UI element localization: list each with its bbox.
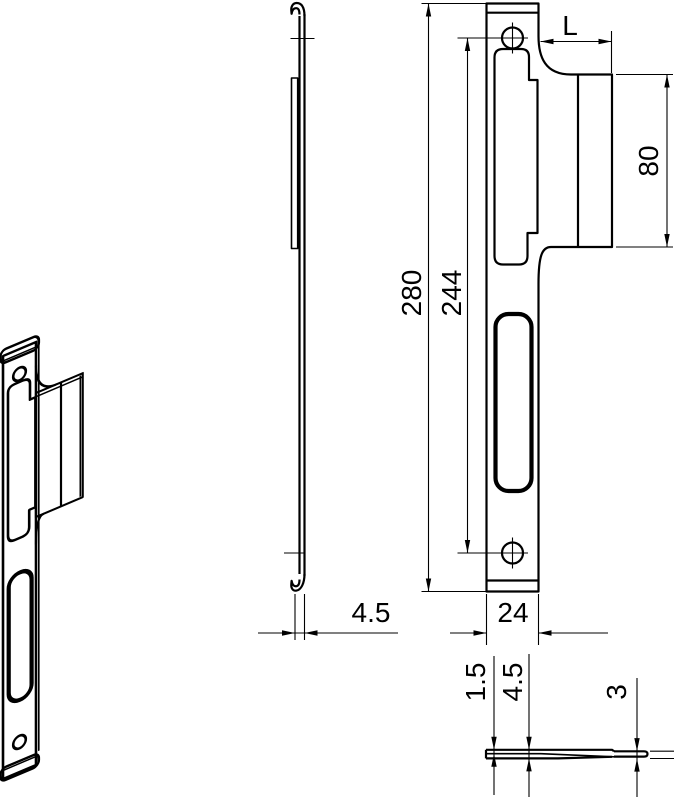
- arrowhead: [526, 758, 531, 771]
- arrowhead: [305, 630, 318, 636]
- overall-height-label: 280: [396, 270, 427, 317]
- arrowhead: [634, 759, 639, 772]
- side-bottom-foot-curl: [291, 574, 304, 591]
- arrowhead: [491, 737, 496, 750]
- arrowhead: [465, 38, 470, 51]
- front-view: [487, 4, 613, 592]
- arrowhead: [282, 630, 295, 636]
- arrowhead: [539, 630, 552, 635]
- arrowhead: [599, 39, 612, 44]
- arrowhead: [634, 738, 639, 751]
- front-bottom-hole-crosshair: [497, 538, 528, 569]
- arrowhead: [426, 4, 431, 17]
- side-tab-profile: [292, 78, 298, 249]
- arrowhead: [474, 630, 487, 635]
- tab-length-dimension: L: [541, 10, 612, 73]
- section-bend-diagonal: [541, 754, 614, 757]
- side-depth-label: 4.5: [352, 597, 391, 628]
- iso-upper-slot: [8, 375, 35, 543]
- side-depth-dimension: 4.5: [258, 594, 398, 640]
- section-bottom-edge: [486, 757, 612, 759]
- arrowhead: [491, 754, 496, 767]
- arrowhead: [465, 540, 470, 553]
- isometric-view: [1, 316, 83, 782]
- tab-offset-label: 3: [601, 684, 632, 700]
- side-view: [284, 3, 315, 591]
- section-top-edge: [486, 750, 614, 752]
- tab-offset-dimension: 3: [601, 678, 640, 797]
- plate-width-dimension: 24: [450, 594, 608, 645]
- arrowhead: [664, 234, 669, 247]
- technical-drawing-page: 4.5 280 244 L: [0, 0, 675, 800]
- iso-tab-face: [36, 373, 83, 517]
- arrowhead: [541, 39, 554, 44]
- plate-width-label: 24: [497, 597, 528, 628]
- section-tab-strip: [614, 751, 648, 756]
- front-lower-slot: [496, 314, 532, 491]
- section-view: [486, 750, 674, 759]
- section-ext-lines-right: [650, 751, 674, 758]
- arrowhead: [664, 75, 669, 88]
- hole-spacing-dimension: 244: [436, 38, 497, 553]
- sheet-thickness-label: 1.5: [460, 663, 491, 702]
- sheet-thickness-dimension: 1.5: [460, 656, 497, 795]
- side-top-foot-curl: [291, 3, 304, 16]
- hole-spacing-label: 244: [436, 270, 467, 317]
- tab-length-label: L: [562, 10, 578, 41]
- iso-lower-slot: [9, 567, 32, 704]
- arrowhead: [526, 737, 531, 750]
- technical-drawing: 4.5 280 244 L: [0, 0, 675, 800]
- front-plate-outline: [487, 4, 613, 592]
- total-depth-label: 4.5: [497, 663, 528, 702]
- iso-bottom-screw-hole: [13, 733, 26, 751]
- total-depth-dimension: 4.5: [497, 654, 532, 797]
- tab-height-label: 80: [633, 145, 664, 176]
- tab-height-dimension: 80: [616, 75, 673, 248]
- arrowhead: [426, 579, 431, 592]
- front-upper-slot: [495, 49, 538, 265]
